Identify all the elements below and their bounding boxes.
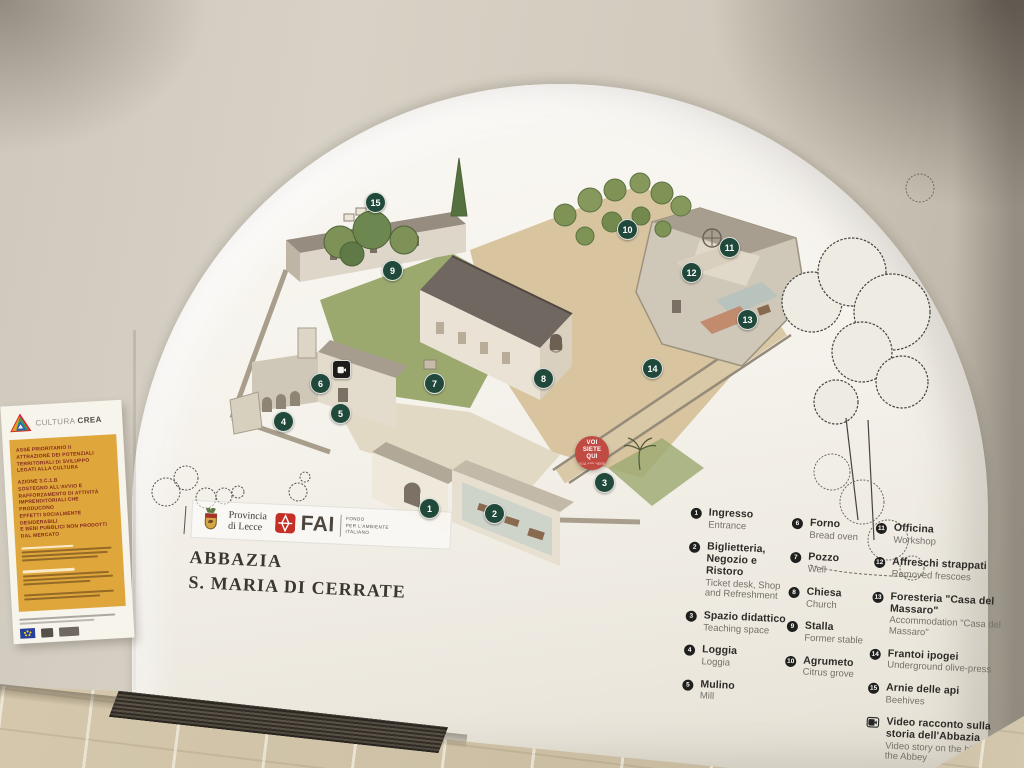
legend-item-2: 2Biglietteria, Negozio e RistoroTicket d…: [687, 541, 794, 604]
legend-number-badge: 6: [792, 518, 804, 530]
legend-labels: OfficinaWorkshop: [893, 523, 937, 548]
legend-labels: LoggiaLoggia: [701, 645, 737, 670]
cultura-crea-poster: CULTURA CREA ASSE PRIORITARIO II ATTRAZI…: [0, 400, 134, 644]
fai-mark-icon: [275, 513, 296, 534]
map-marker-13: 13: [737, 309, 758, 330]
you-are-here-label-en: YOU ARE HERE: [579, 462, 605, 466]
legend-label-en: Accommodation "Casa del Massaro": [889, 616, 1012, 643]
legend-item-7: 7PozzoWell: [789, 551, 882, 579]
divider: [339, 515, 341, 537]
poster-brand-bold: CREA: [77, 414, 102, 424]
legend-label-en: Well: [807, 565, 838, 577]
legend-label-en: Citrus grove: [802, 668, 854, 681]
legend-labels: MulinoMill: [700, 679, 736, 704]
legend-labels: Affreschi strappatiRemoved frescoes: [891, 557, 987, 585]
map-marker-video-icon: [332, 360, 351, 379]
legend-item-8: 8ChiesaChurch: [788, 586, 881, 614]
poster-footer-logos: [20, 623, 127, 639]
legend-labels: ChiesaChurch: [806, 586, 842, 611]
legend-number-badge: 12: [874, 557, 886, 569]
legend-labels: AgrumetoCitrus grove: [802, 655, 854, 681]
legend-number-badge: 7: [790, 552, 802, 564]
legend-item-9: 9StallaFormer stable: [786, 620, 879, 648]
legend-number-badge: 10: [785, 655, 797, 667]
legend-number-badge: 8: [788, 587, 800, 599]
legend-column-3: 11OfficinaWorkshop12Affreschi strappatiR…: [864, 522, 1016, 768]
legend-label-en: Workshop: [893, 535, 936, 548]
legend-labels: FornoBread oven: [809, 518, 859, 544]
map-marker-15: 15: [365, 192, 386, 213]
map-marker-1: 1: [419, 498, 440, 519]
legend-labels: Foresteria "Casa del Massaro"Accommodati…: [889, 591, 1013, 643]
fai-full-name: FONDO PER L'AMBIENTE ITALIANO: [345, 516, 389, 539]
legend-labels: Frantoi ipogeiUnderground olive-press: [887, 648, 992, 676]
legend-label-en: Ticket desk, Shop and Refreshment: [705, 578, 792, 603]
legend-labels: PozzoWell: [807, 552, 839, 577]
legend-label-en: Mill: [700, 692, 735, 704]
title-block: Provincia di Lecce FAI FONDO PER L'AMBIE…: [188, 500, 460, 605]
map-marker-9: 9: [382, 260, 403, 281]
legend-labels: Arnie delle apiBeehives: [885, 682, 959, 709]
legend-item-12: 12Affreschi strappatiRemoved frescoes: [873, 556, 1014, 586]
fai-logo: FAI FONDO PER L'AMBIENTE ITALIANO: [275, 511, 389, 540]
legend-label-en: Former stable: [804, 633, 863, 646]
map-marker-5: 5: [330, 403, 351, 424]
map-marker-6: 6: [310, 373, 331, 394]
legend-labels: StallaFormer stable: [804, 621, 864, 647]
legend-number-badge: 9: [787, 621, 799, 633]
provincia-di-lecce-crest-icon: [202, 507, 220, 532]
legend-labels: IngressoEntrance: [708, 507, 754, 533]
map-marker-8: 8: [533, 368, 554, 389]
map-marker-4: 4: [273, 411, 294, 432]
map-marker-7: 7: [424, 373, 445, 394]
cultura-crea-logo-icon: [9, 413, 32, 434]
map-marker-12: 12: [681, 262, 702, 283]
legend-number-badge: 15: [868, 682, 880, 694]
legend-number-badge: 5: [682, 679, 694, 691]
legend-label-en: Bread oven: [809, 530, 858, 543]
legend-item-14: 14Frantoi ipogeiUnderground olive-press: [869, 647, 1010, 677]
legend-number-badge: 4: [684, 645, 696, 657]
legend-label-en: Entrance: [708, 520, 753, 533]
legend-item-10: 10AgrumetoCitrus grove: [784, 654, 877, 682]
legend-labels: Biglietteria, Negozio e RistoroTicket de…: [705, 542, 794, 604]
legend-number-badge: 11: [876, 523, 888, 535]
legend-number-badge: 13: [872, 591, 884, 603]
legend-item-3: 3Spazio didatticoTeaching space: [685, 609, 790, 637]
poster-yellow-panel: ASSE PRIORITARIO II ATTRAZIONE DEI POTEN…: [9, 434, 125, 612]
poster-brand: CULTURA CREA: [35, 414, 102, 427]
legend-number-badge: 14: [869, 648, 881, 660]
you-are-here-pin: VOI SIETE QUI YOU ARE HERE: [575, 436, 609, 470]
partner-logo-icon: [59, 626, 79, 636]
legend-label-it: Chiesa: [806, 586, 842, 599]
partner-logo-icon: [41, 627, 53, 637]
photo-abbey-map-wall: VOI SIETE QUI YOU ARE HERE 1234567891011…: [0, 0, 1024, 768]
legend-column-1: 1IngressoEntrance2Biglietteria, Negozio …: [681, 507, 795, 718]
legend-labels: Spazio didatticoTeaching space: [703, 610, 786, 637]
legend-label-en: Loggia: [701, 657, 736, 669]
legend-item-4: 4LoggiaLoggia: [683, 644, 788, 672]
you-are-here-label-it: VOI SIETE QUI: [583, 440, 601, 461]
legend-item-13: 13Foresteria "Casa del Massaro"Accommoda…: [871, 590, 1013, 643]
provincia-di-lecce-label: Provincia di Lecce: [228, 509, 267, 534]
legend-number-badge: 3: [685, 610, 697, 622]
eu-flag-icon: [20, 628, 36, 639]
map-marker-3: 3: [594, 472, 615, 493]
legend-label-en: Underground olive-press: [887, 661, 991, 677]
fai-acronym: FAI: [300, 512, 335, 538]
poster-heading-2: AZIONE 3.C.1.B SOSTEGNO ALL'AVVIO E RAFF…: [18, 474, 116, 540]
legend-item-5: 5MulinoMill: [682, 678, 787, 706]
map-marker-11: 11: [719, 237, 740, 258]
legend-number-badge: 2: [689, 542, 701, 554]
map-marker-14: 14: [642, 358, 663, 379]
legend-label-en: Church: [806, 599, 842, 611]
poster-fine-print-block: [21, 542, 119, 600]
legend-item-15: 15Arnie delle apiBeehives: [867, 681, 1008, 711]
legend-label-it: Biglietteria, Negozio e Ristoro: [706, 542, 794, 581]
poster-brand-light: CULTURA: [35, 416, 75, 427]
poster-footer: [12, 605, 134, 639]
legend-item-6: 6FornoBread oven: [791, 517, 884, 545]
map-marker-2: 2: [484, 503, 505, 524]
legend-label-en: Beehives: [885, 695, 959, 709]
legend-item-11: 11OfficinaWorkshop: [875, 522, 1016, 552]
map-marker-10: 10: [617, 219, 638, 240]
video-camera-icon: [866, 717, 880, 729]
legend-item-1: 1IngressoEntrance: [690, 507, 795, 535]
legend-number-badge: 1: [691, 508, 703, 520]
